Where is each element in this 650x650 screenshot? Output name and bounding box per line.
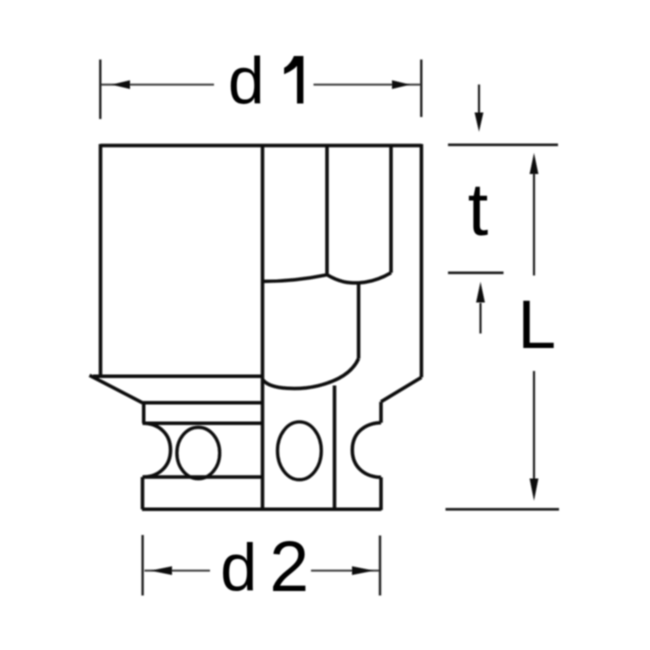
svg-text:L: L: [518, 286, 556, 363]
svg-text:2: 2: [270, 528, 310, 607]
svg-text:d: d: [228, 45, 264, 118]
svg-text:d: d: [220, 532, 257, 606]
svg-text:t: t: [468, 168, 489, 251]
